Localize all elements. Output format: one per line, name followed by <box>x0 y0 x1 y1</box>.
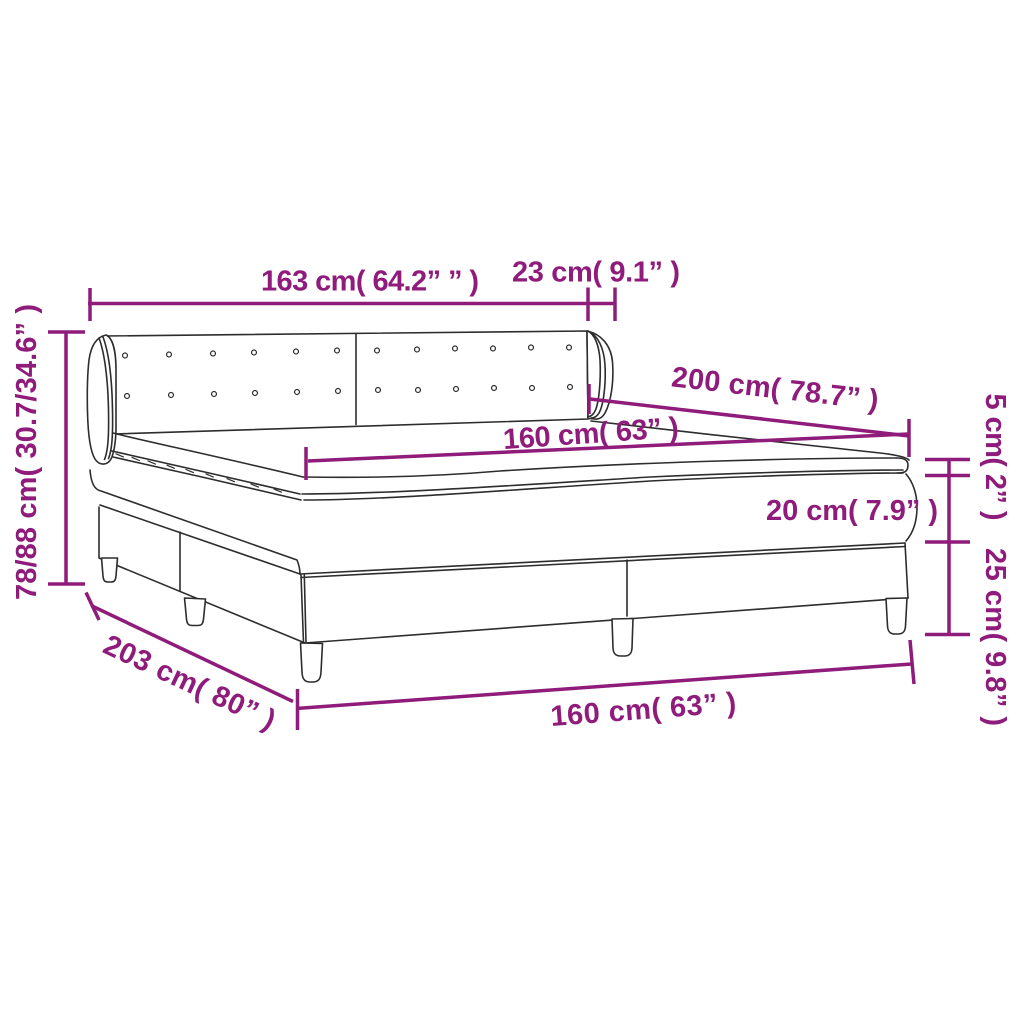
svg-text:78/88 cm( 30.7/34.6” ): 78/88 cm( 30.7/34.6” ) <box>11 304 43 600</box>
svg-text:5 cm( 2” ): 5 cm( 2” ) <box>979 394 1011 521</box>
svg-text:20 cm( 7.9” ): 20 cm( 7.9” ) <box>766 495 938 527</box>
svg-text:23 cm( 9.1” ): 23 cm( 9.1” ) <box>512 257 680 289</box>
svg-text:163 cm( 64.2” ” ): 163 cm( 64.2” ” ) <box>261 266 479 298</box>
svg-text:25 cm( 9.8” ): 25 cm( 9.8” ) <box>979 548 1011 726</box>
